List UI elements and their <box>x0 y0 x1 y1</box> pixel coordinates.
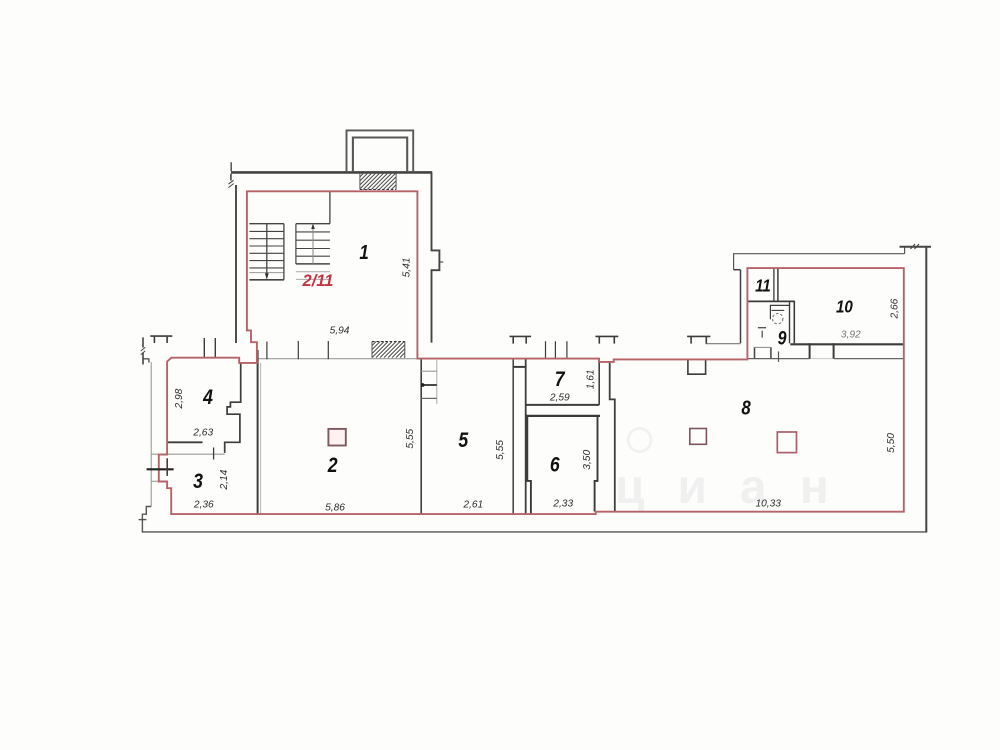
svg-text:3,50: 3,50 <box>582 450 593 470</box>
svg-text:2,63: 2,63 <box>192 428 213 439</box>
svg-text:3,92: 3,92 <box>841 330 861 341</box>
svg-text:5,41: 5,41 <box>401 258 412 278</box>
svg-text:10: 10 <box>836 296 853 317</box>
svg-text:2,36: 2,36 <box>193 500 214 511</box>
svg-text:2,33: 2,33 <box>552 499 573 510</box>
svg-text:2/11: 2/11 <box>302 272 334 290</box>
svg-text:5,50: 5,50 <box>886 433 897 453</box>
svg-text:2,98: 2,98 <box>174 388 185 409</box>
svg-text:6: 6 <box>550 453 560 477</box>
svg-text:2,14: 2,14 <box>219 469 230 490</box>
svg-text:8: 8 <box>741 396 751 419</box>
svg-text:5,55: 5,55 <box>405 428 416 448</box>
svg-text:2: 2 <box>327 454 338 478</box>
svg-text:2,66: 2,66 <box>889 298 900 319</box>
svg-text:4: 4 <box>202 386 213 410</box>
svg-text:10,33: 10,33 <box>755 498 781 509</box>
svg-text:1: 1 <box>359 241 368 264</box>
svg-text:11: 11 <box>755 275 771 296</box>
svg-text:циан: циан <box>615 461 862 514</box>
svg-text:5: 5 <box>458 429 468 453</box>
svg-text:1,61: 1,61 <box>586 369 597 389</box>
svg-text:7: 7 <box>555 368 566 392</box>
svg-text:2,59: 2,59 <box>549 392 570 403</box>
svg-text:3: 3 <box>193 470 203 494</box>
svg-text:2,61: 2,61 <box>462 500 483 511</box>
svg-text:5,94: 5,94 <box>330 326 350 337</box>
svg-text:5,55: 5,55 <box>495 440 506 460</box>
svg-text:9: 9 <box>778 327 787 349</box>
svg-text:5,86: 5,86 <box>325 503 345 514</box>
